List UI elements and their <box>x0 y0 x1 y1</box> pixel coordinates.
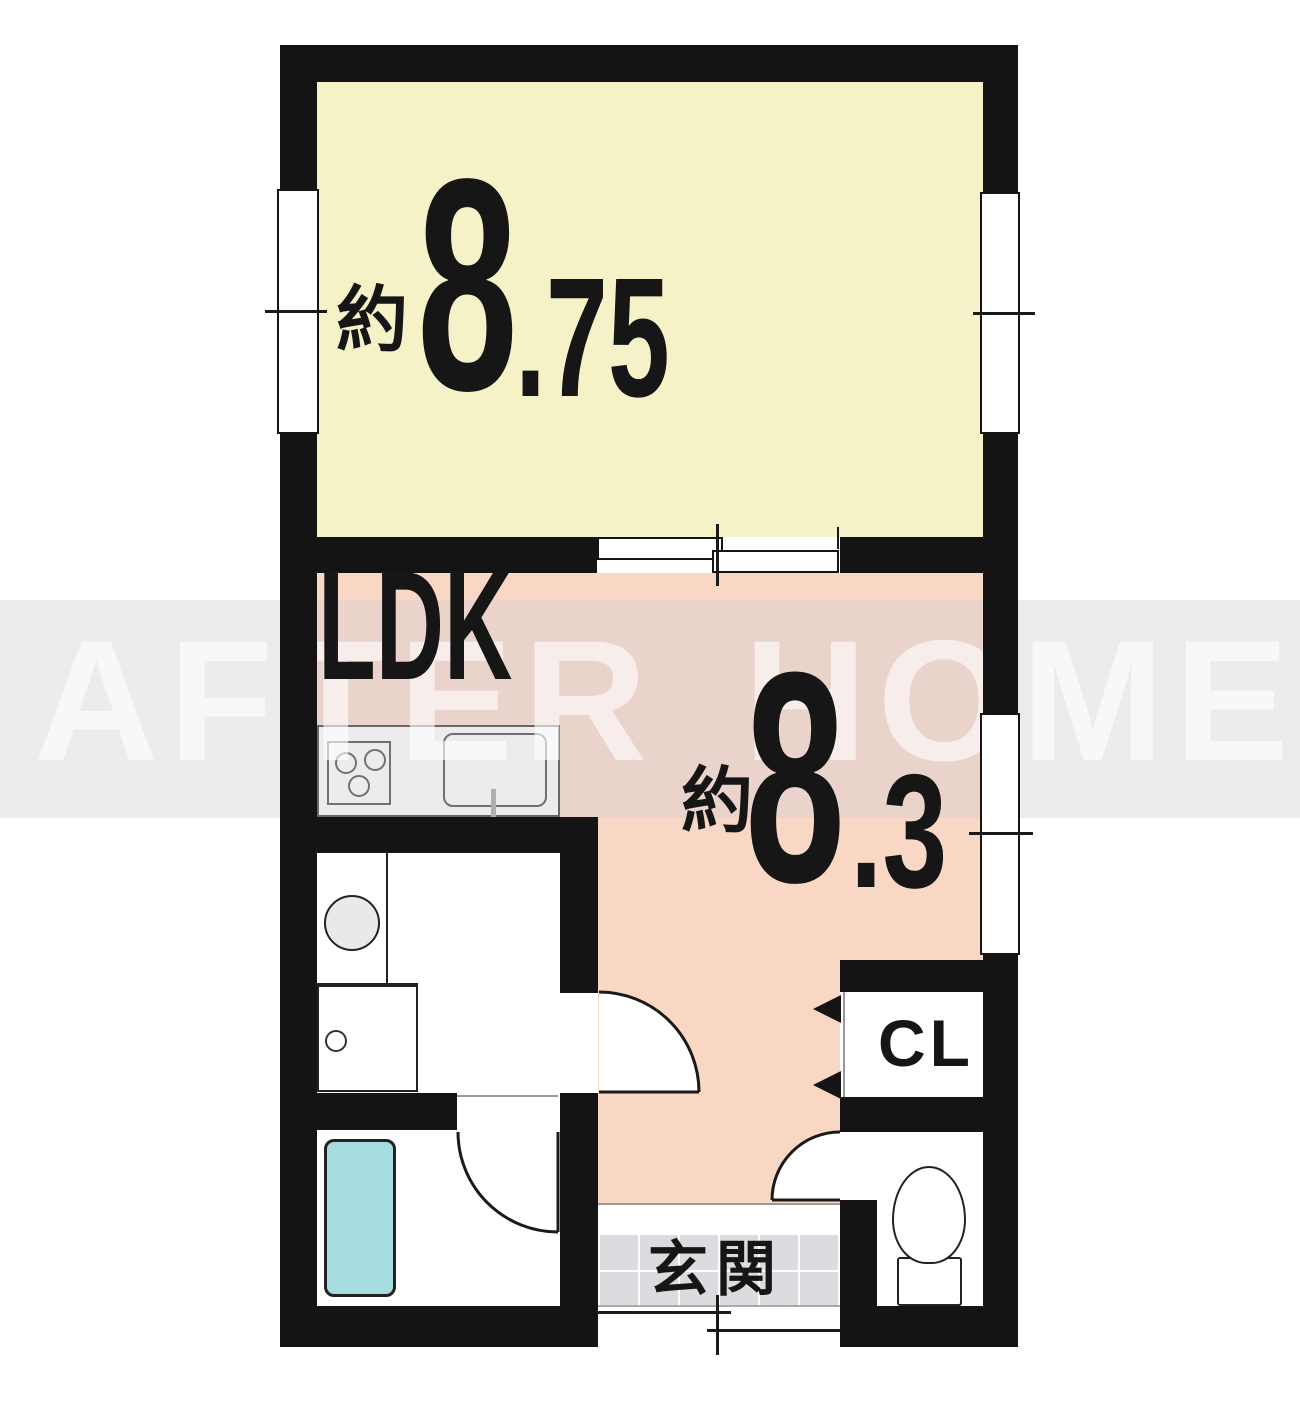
entrance-label: 玄関 <box>648 1240 784 1300</box>
entrance-door-tick <box>716 1295 719 1355</box>
sliding-door-tick <box>837 527 839 549</box>
ldk-size: 8 <box>745 627 845 927</box>
western-room-size-fraction: .75 <box>515 253 670 423</box>
ldk-size-fraction: .3 <box>850 751 947 913</box>
window-tick <box>973 312 1035 315</box>
window-tick <box>969 832 1033 835</box>
window-tick <box>265 310 327 313</box>
sliding-door-tick <box>716 524 719 586</box>
ldk-label: LDK <box>318 548 512 703</box>
door-swing-layer <box>0 0 1300 1419</box>
western-room-approx-label: 約 <box>336 285 408 357</box>
ldk-approx-label: 約 <box>681 766 753 838</box>
closet-door-chevron-icon <box>813 1071 841 1099</box>
western-room-size: 8 <box>417 134 518 436</box>
closet-label: CL <box>878 1010 974 1076</box>
closet-door-chevron-icon <box>813 995 841 1023</box>
floor-plan: AFTER HOME <box>0 0 1300 1419</box>
